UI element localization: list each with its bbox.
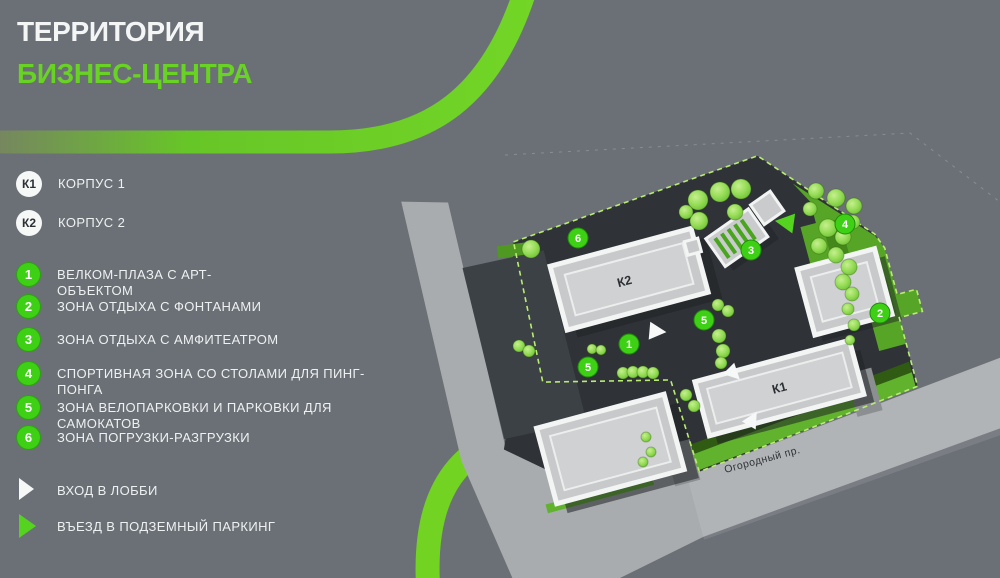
parking-arrow-icon xyxy=(19,514,36,538)
legend-label: ЗОНА ОТДЫХА С ФОНТАНАМИ xyxy=(57,294,261,315)
svg-text:5: 5 xyxy=(701,315,707,327)
item-number: 3 xyxy=(16,327,41,352)
item-number: 1 xyxy=(16,262,41,287)
legend-item-2: 2 ЗОНА ОТДЫХА С ФОНТАНАМИ xyxy=(16,294,261,319)
legend-label: КОРПУС 2 xyxy=(58,210,125,231)
k2-badge: К2 xyxy=(16,210,42,236)
page-title-line1: ТЕРРИТОРИЯ xyxy=(17,16,204,48)
tilted-plan: К2 К1 xyxy=(393,32,1000,578)
item-number: 6 xyxy=(16,425,41,450)
legend-label: ЗОНА ПОГРУЗКИ-РАЗГРУЗКИ xyxy=(57,425,250,446)
svg-text:2: 2 xyxy=(877,308,883,320)
lobby-arrow-icon xyxy=(19,478,34,500)
legend-entrance-lobby: ВХОД В ЛОББИ xyxy=(16,478,158,500)
svg-text:4: 4 xyxy=(842,219,849,231)
map-marker-4: 4 xyxy=(835,214,855,234)
map-marker-5b: 5 xyxy=(578,357,598,377)
svg-text:5: 5 xyxy=(585,362,591,374)
map-marker-5a: 5 xyxy=(694,310,714,330)
legend-item-6: 6 ЗОНА ПОГРУЗКИ-РАЗГРУЗКИ xyxy=(16,425,250,450)
svg-text:1: 1 xyxy=(626,339,632,351)
site-plan-page: К2 К1 xyxy=(0,0,1000,578)
map-marker-6: 6 xyxy=(568,228,588,248)
k1-badge: К1 xyxy=(16,171,42,197)
legend-building-k1: К1 КОРПУС 1 xyxy=(16,171,125,197)
svg-text:3: 3 xyxy=(748,245,754,257)
legend-entrance-parking: ВЪЕЗД В ПОДЗЕМНЫЙ ПАРКИНГ xyxy=(16,514,275,538)
legend-label: ВХОД В ЛОББИ xyxy=(57,478,158,499)
map-marker-3: 3 xyxy=(741,240,761,260)
item-number: 2 xyxy=(16,294,41,319)
item-number: 5 xyxy=(16,395,41,420)
map-marker-2: 2 xyxy=(870,303,890,323)
legend-building-k2: К2 КОРПУС 2 xyxy=(16,210,125,236)
page-title-line2: БИЗНЕС-ЦЕНТРА xyxy=(17,58,252,90)
legend-label: ЗОНА ОТДЫХА С АМФИТЕАТРОМ xyxy=(57,327,279,348)
legend-label: СПОРТИВНАЯ ЗОНА СО СТОЛАМИ ДЛЯ ПИНГ-ПОНГ… xyxy=(57,361,369,398)
legend-item-4: 4 СПОРТИВНАЯ ЗОНА СО СТОЛАМИ ДЛЯ ПИНГ-ПО… xyxy=(16,361,369,398)
item-number: 4 xyxy=(16,361,41,386)
svg-text:6: 6 xyxy=(575,233,581,245)
legend-label: КОРПУС 1 xyxy=(58,171,125,192)
legend-label: ВЪЕЗД В ПОДЗЕМНЫЙ ПАРКИНГ xyxy=(57,514,275,535)
map-marker-1: 1 xyxy=(619,334,639,354)
legend-item-3: 3 ЗОНА ОТДЫХА С АМФИТЕАТРОМ xyxy=(16,327,279,352)
